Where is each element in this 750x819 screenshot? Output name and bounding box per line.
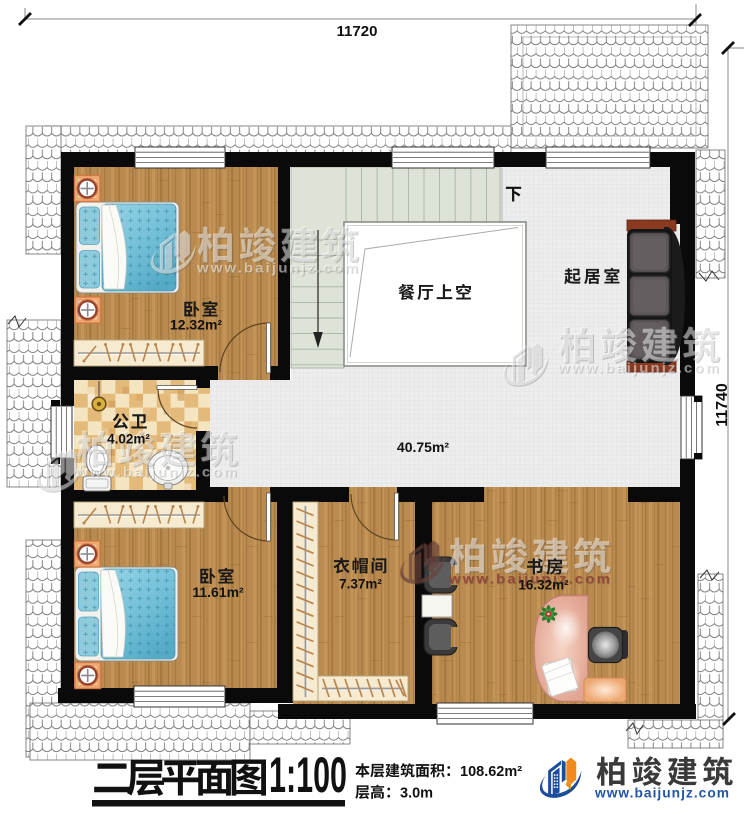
svg-text:12.32m²: 12.32m² <box>170 317 222 333</box>
svg-text:16.32m²: 16.32m² <box>518 578 569 593</box>
svg-text:www.baijunjz.com: www.baijunjz.com <box>75 464 239 480</box>
svg-text:3.0m: 3.0m <box>400 786 433 802</box>
svg-text:www.baijunjz.com: www.baijunjz.com <box>594 786 730 801</box>
svg-text:11.61m²: 11.61m² <box>192 584 244 600</box>
svg-text:7.37m²: 7.37m² <box>339 577 382 592</box>
svg-text:11720: 11720 <box>337 23 378 40</box>
svg-text:11740: 11740 <box>714 383 731 427</box>
svg-text:1:100: 1:100 <box>269 747 347 803</box>
svg-text:40.75m²: 40.75m² <box>397 439 449 455</box>
svg-text:108.62m²: 108.62m² <box>460 764 522 780</box>
svg-text:www.baijunjz.com: www.baijunjz.com <box>196 260 360 276</box>
svg-text:www.baijunjz.com: www.baijunjz.com <box>557 360 721 376</box>
svg-text:4.02m²: 4.02m² <box>107 432 150 447</box>
